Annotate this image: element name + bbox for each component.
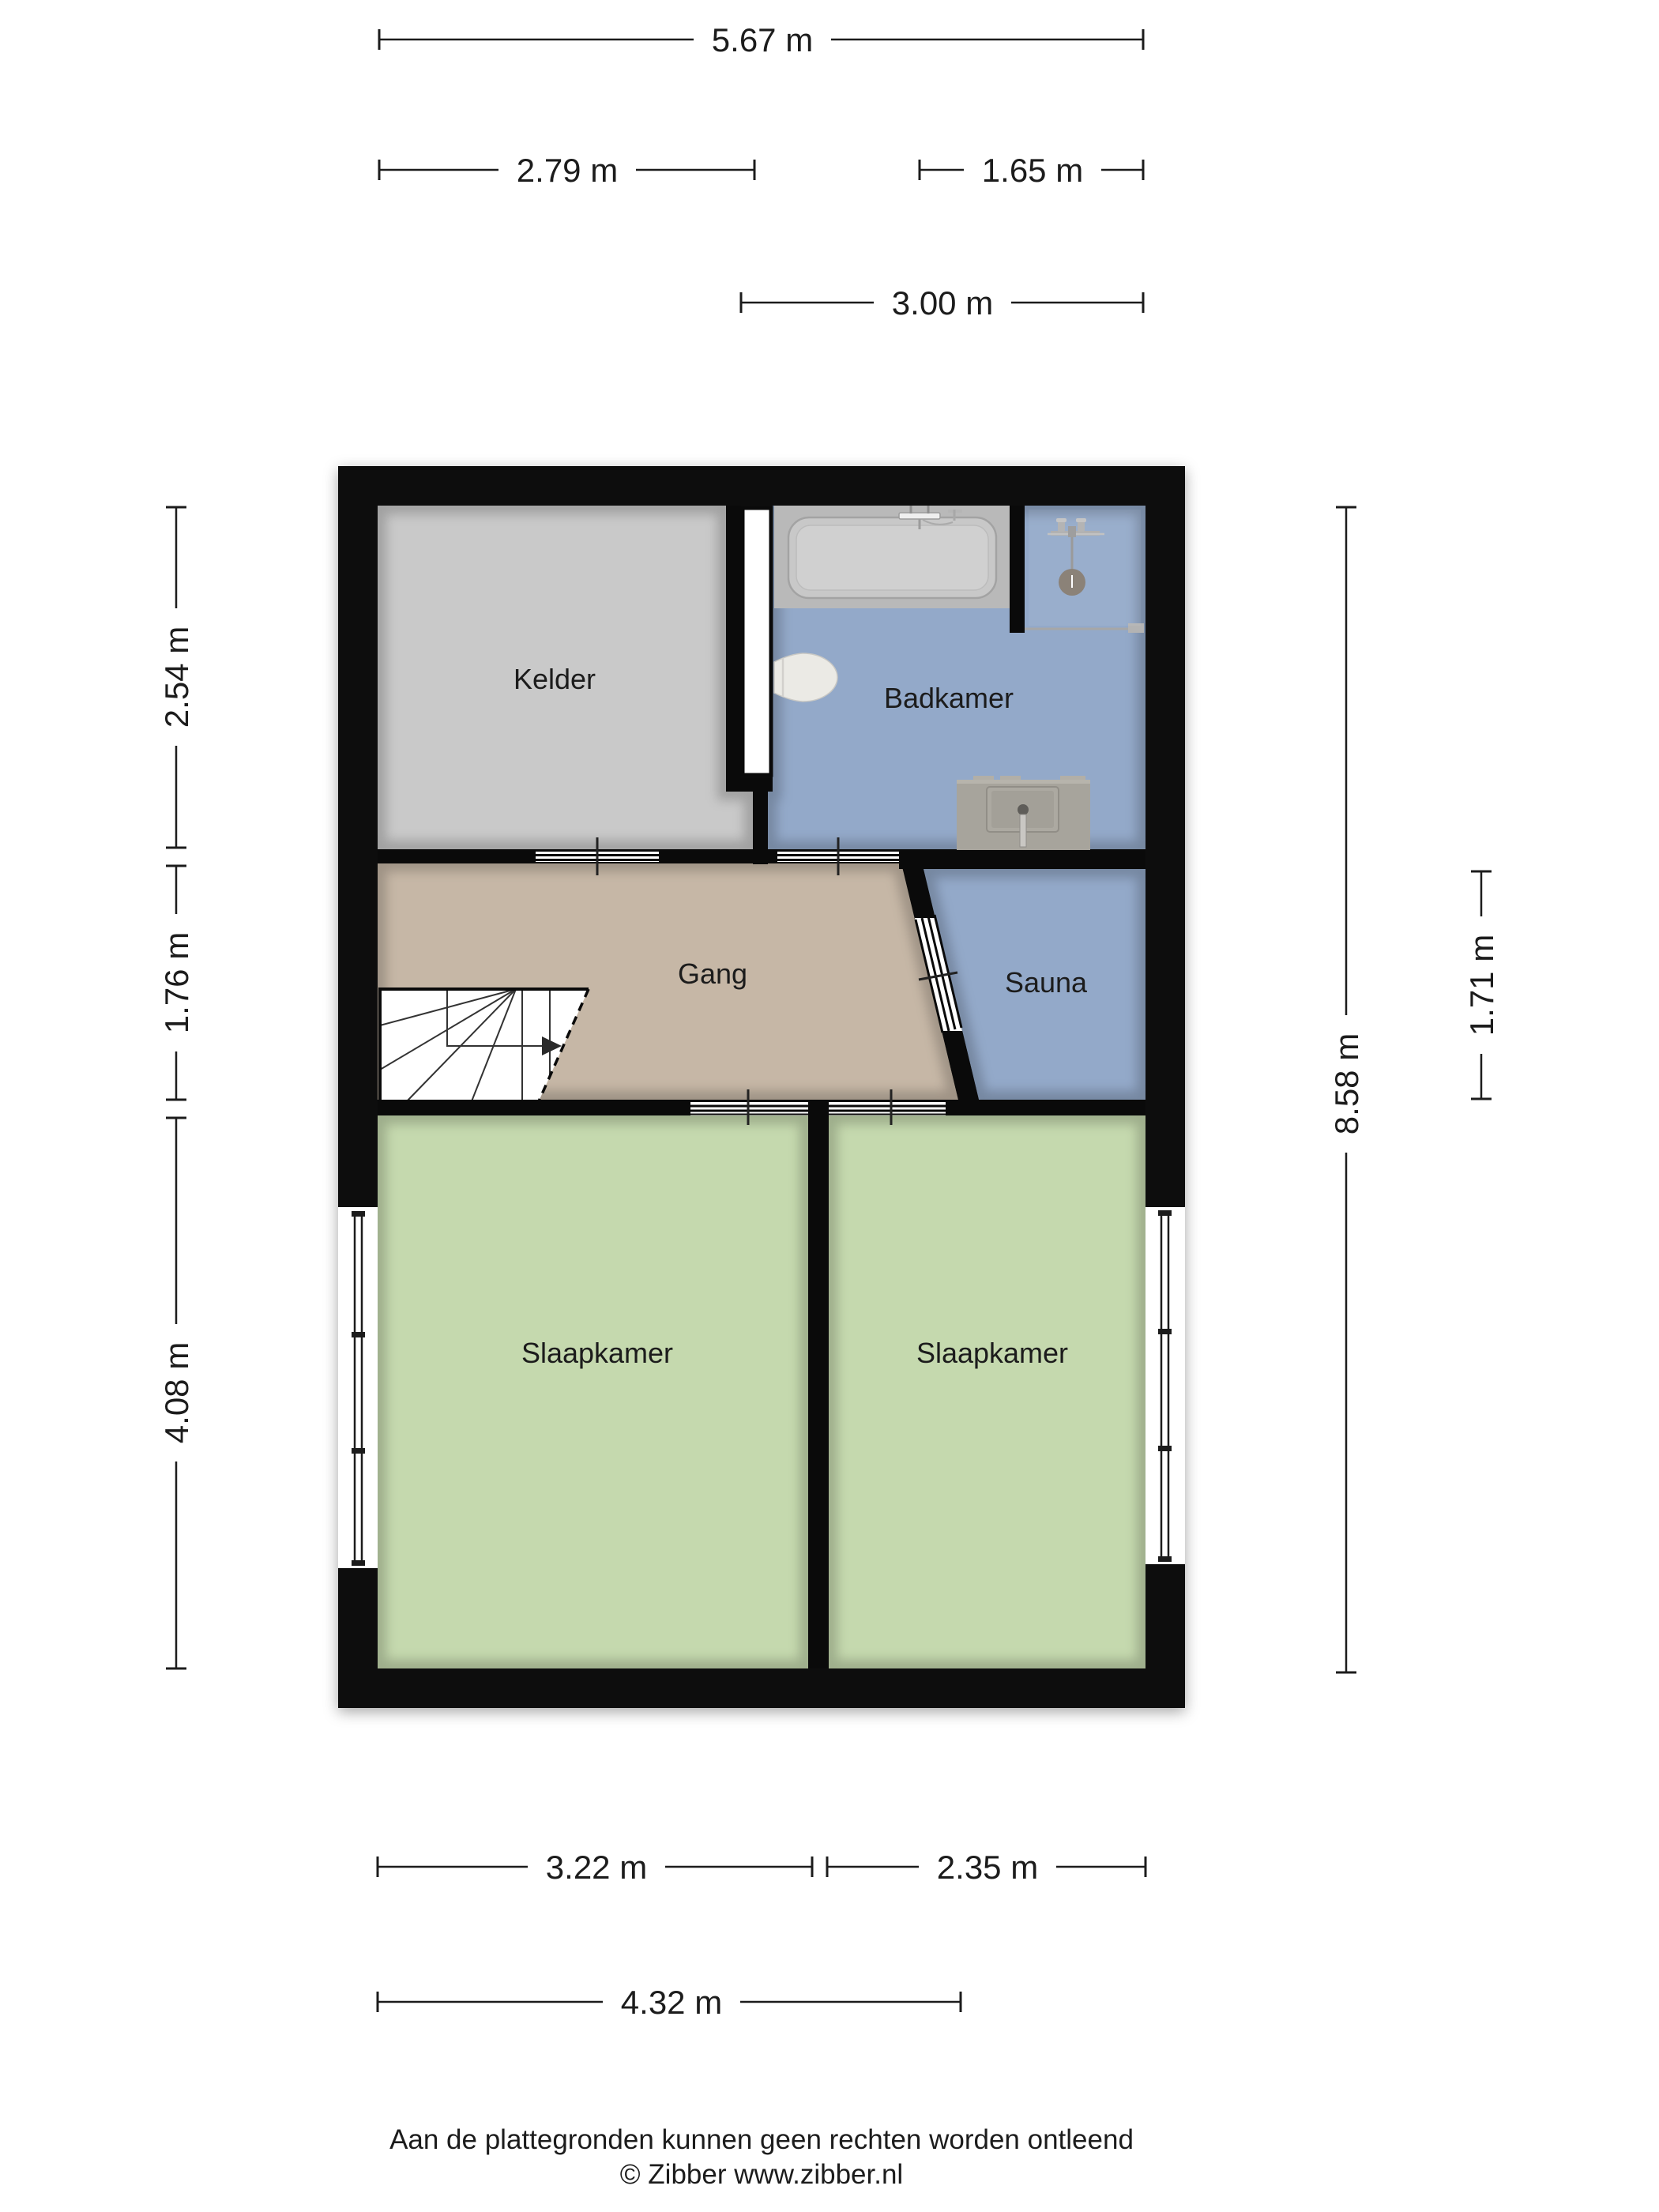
svg-text:4.08 m: 4.08 m [158, 1342, 195, 1443]
svg-text:Kelder: Kelder [513, 663, 596, 695]
svg-text:5.67 m: 5.67 m [712, 21, 813, 58]
svg-text:Slaapkamer: Slaapkamer [521, 1337, 673, 1369]
svg-text:Gang: Gang [678, 957, 747, 990]
svg-text:4.32 m: 4.32 m [621, 1984, 722, 2021]
svg-text:2.79 m: 2.79 m [517, 152, 618, 189]
svg-text:2.54 m: 2.54 m [158, 626, 195, 728]
svg-text:3.22 m: 3.22 m [546, 1849, 647, 1886]
svg-text:8.58 m: 8.58 m [1328, 1033, 1365, 1134]
svg-text:1.71 m: 1.71 m [1463, 935, 1500, 1036]
svg-text:Slaapkamer: Slaapkamer [916, 1337, 1068, 1369]
svg-text:Aan de plattegronden kunnen ge: Aan de plattegronden kunnen geen rechten… [389, 2124, 1134, 2155]
svg-text:1.76 m: 1.76 m [158, 932, 195, 1033]
svg-text:© Zibber www.zibber.nl: © Zibber www.zibber.nl [620, 2159, 903, 2190]
svg-text:Badkamer: Badkamer [884, 682, 1014, 714]
svg-text:Sauna: Sauna [1005, 966, 1088, 999]
svg-text:2.35 m: 2.35 m [937, 1849, 1038, 1886]
svg-text:3.00 m: 3.00 m [892, 284, 993, 322]
svg-text:1.65 m: 1.65 m [982, 152, 1083, 189]
